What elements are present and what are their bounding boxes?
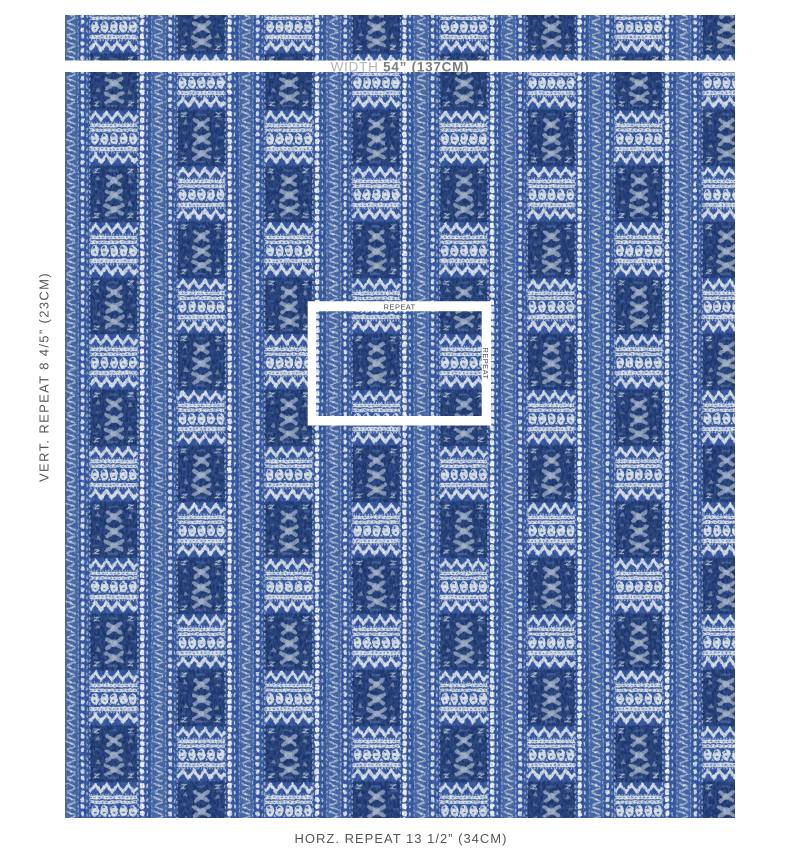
svg-text:REPEAT: REPEAT (384, 302, 416, 311)
svg-text:VERT. REPEAT 8 4/5” (23CM): VERT. REPEAT 8 4/5” (23CM) (37, 272, 52, 482)
svg-text:WIDTH 54” (137CM): WIDTH 54” (137CM) (331, 59, 470, 74)
svg-text:REPEAT: REPEAT (481, 347, 490, 379)
svg-text:HORZ. REPEAT 13 1/2” (34CM): HORZ. REPEAT 13 1/2” (34CM) (295, 831, 508, 846)
